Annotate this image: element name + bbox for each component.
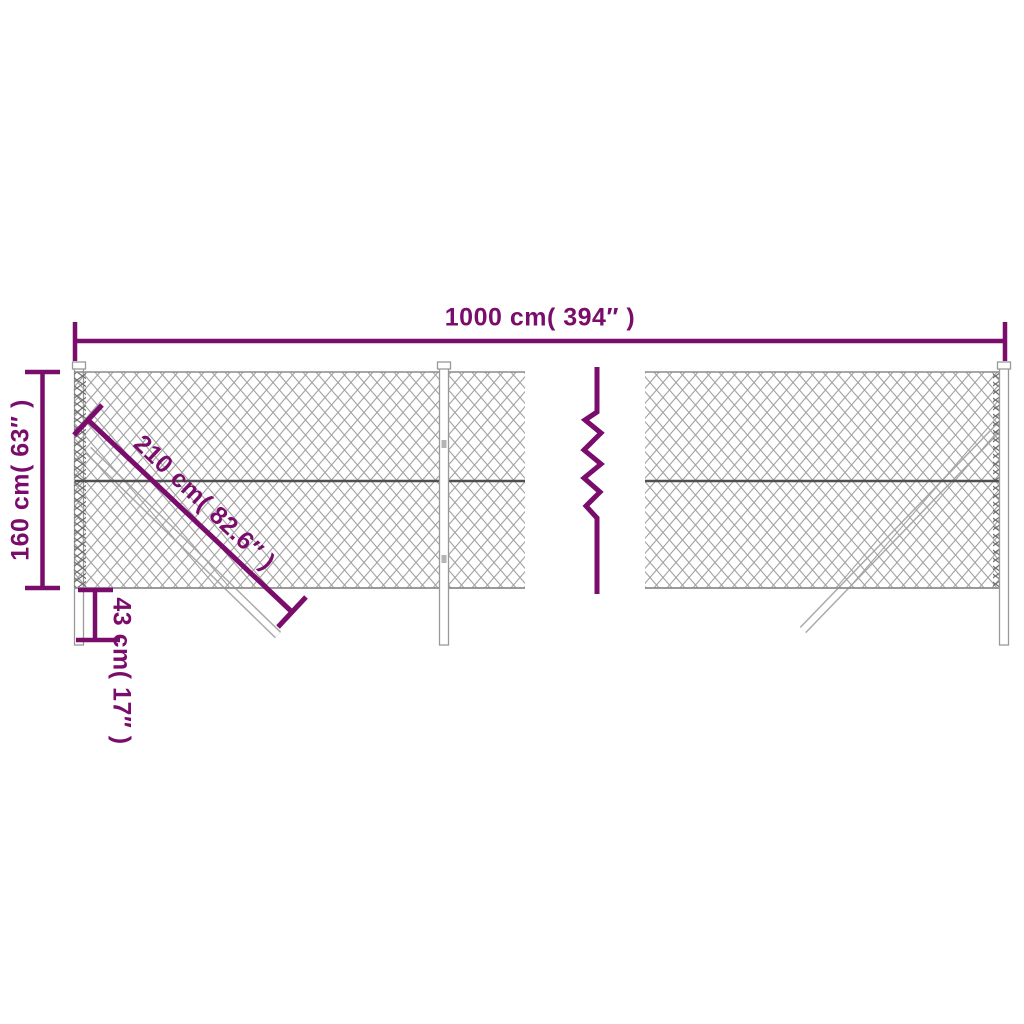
width-dimension-label: 1000 cm( 394″ ) xyxy=(445,306,635,331)
depth-dimension-label: 43 cm( 17″ ) xyxy=(109,597,134,744)
right-mesh-panel xyxy=(645,372,1005,588)
diagram-canvas xyxy=(0,0,1024,1024)
left-mesh-panel xyxy=(74,372,525,588)
break-zigzag xyxy=(584,367,601,594)
height-dimension-label: 160 cm( 63″ ) xyxy=(9,399,34,561)
fence-dimension-diagram: 1000 cm( 394″ ) 160 cm( 63″ ) 210 cm( 82… xyxy=(0,0,1024,1024)
middle-post xyxy=(438,362,451,645)
right-post xyxy=(998,362,1011,645)
